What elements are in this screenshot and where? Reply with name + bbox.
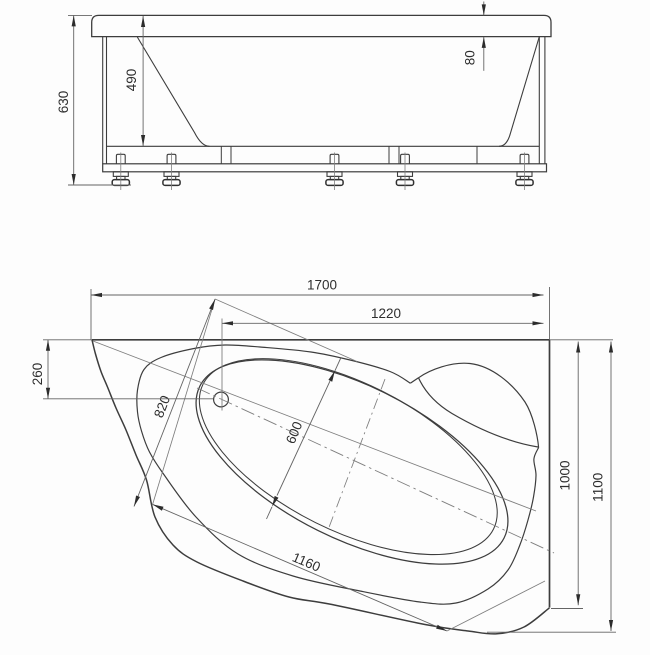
svg-text:1000: 1000 [558, 460, 573, 490]
svg-text:1100: 1100 [591, 473, 606, 502]
svg-text:260: 260 [30, 363, 45, 386]
svg-text:1220: 1220 [371, 306, 401, 321]
svg-text:490: 490 [124, 69, 139, 92]
svg-text:630: 630 [56, 91, 71, 114]
svg-text:1700: 1700 [307, 278, 337, 293]
svg-text:80: 80 [463, 50, 478, 65]
